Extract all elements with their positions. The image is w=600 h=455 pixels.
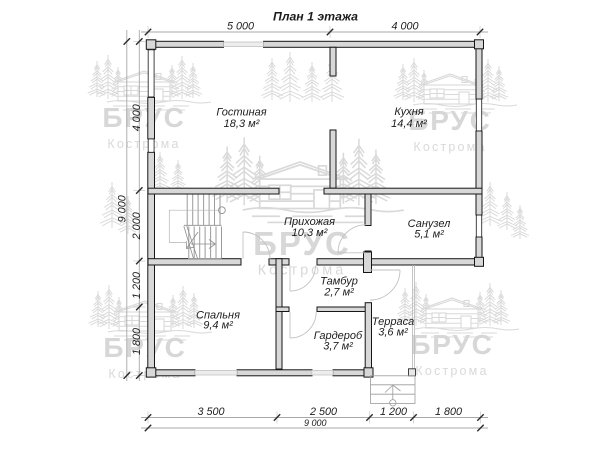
svg-text:4 000: 4 000 [391, 21, 418, 33]
svg-text:БРУС: БРУС [102, 102, 185, 133]
svg-text:9 000: 9 000 [116, 195, 128, 222]
svg-text:10,3 м²: 10,3 м² [292, 227, 328, 239]
svg-text:5 000: 5 000 [227, 21, 254, 33]
svg-text:14,4 м²: 14,4 м² [391, 118, 427, 130]
svg-text:Кухня: Кухня [394, 106, 423, 118]
svg-text:План 1 этажа: План 1 этажа [273, 10, 358, 24]
svg-text:Кострома: Кострома [107, 137, 180, 151]
svg-text:9,4 м²: 9,4 м² [203, 320, 233, 332]
svg-text:5,1 м²: 5,1 м² [414, 229, 444, 241]
svg-text:18,3 м²: 18,3 м² [224, 118, 260, 130]
svg-text:Гостиная: Гостиная [216, 107, 266, 119]
svg-text:БРУС: БРУС [410, 329, 493, 360]
svg-text:1 800: 1 800 [131, 328, 143, 355]
svg-text:1 200: 1 200 [380, 406, 407, 418]
svg-text:3,7 м²: 3,7 м² [323, 341, 353, 353]
svg-text:1 200: 1 200 [131, 272, 143, 299]
svg-text:Кострома: Кострома [415, 364, 488, 378]
svg-text:БРУС: БРУС [103, 332, 186, 363]
svg-text:2,7 м²: 2,7 м² [323, 287, 354, 299]
svg-text:3 500: 3 500 [197, 406, 224, 418]
svg-text:2 000: 2 000 [131, 212, 143, 240]
svg-text:1 800: 1 800 [435, 406, 462, 418]
svg-text:2 500: 2 500 [309, 406, 337, 418]
svg-text:4 000: 4 000 [131, 104, 143, 131]
svg-text:3,6 м²: 3,6 м² [378, 327, 408, 339]
svg-text:9 000: 9 000 [304, 418, 327, 428]
